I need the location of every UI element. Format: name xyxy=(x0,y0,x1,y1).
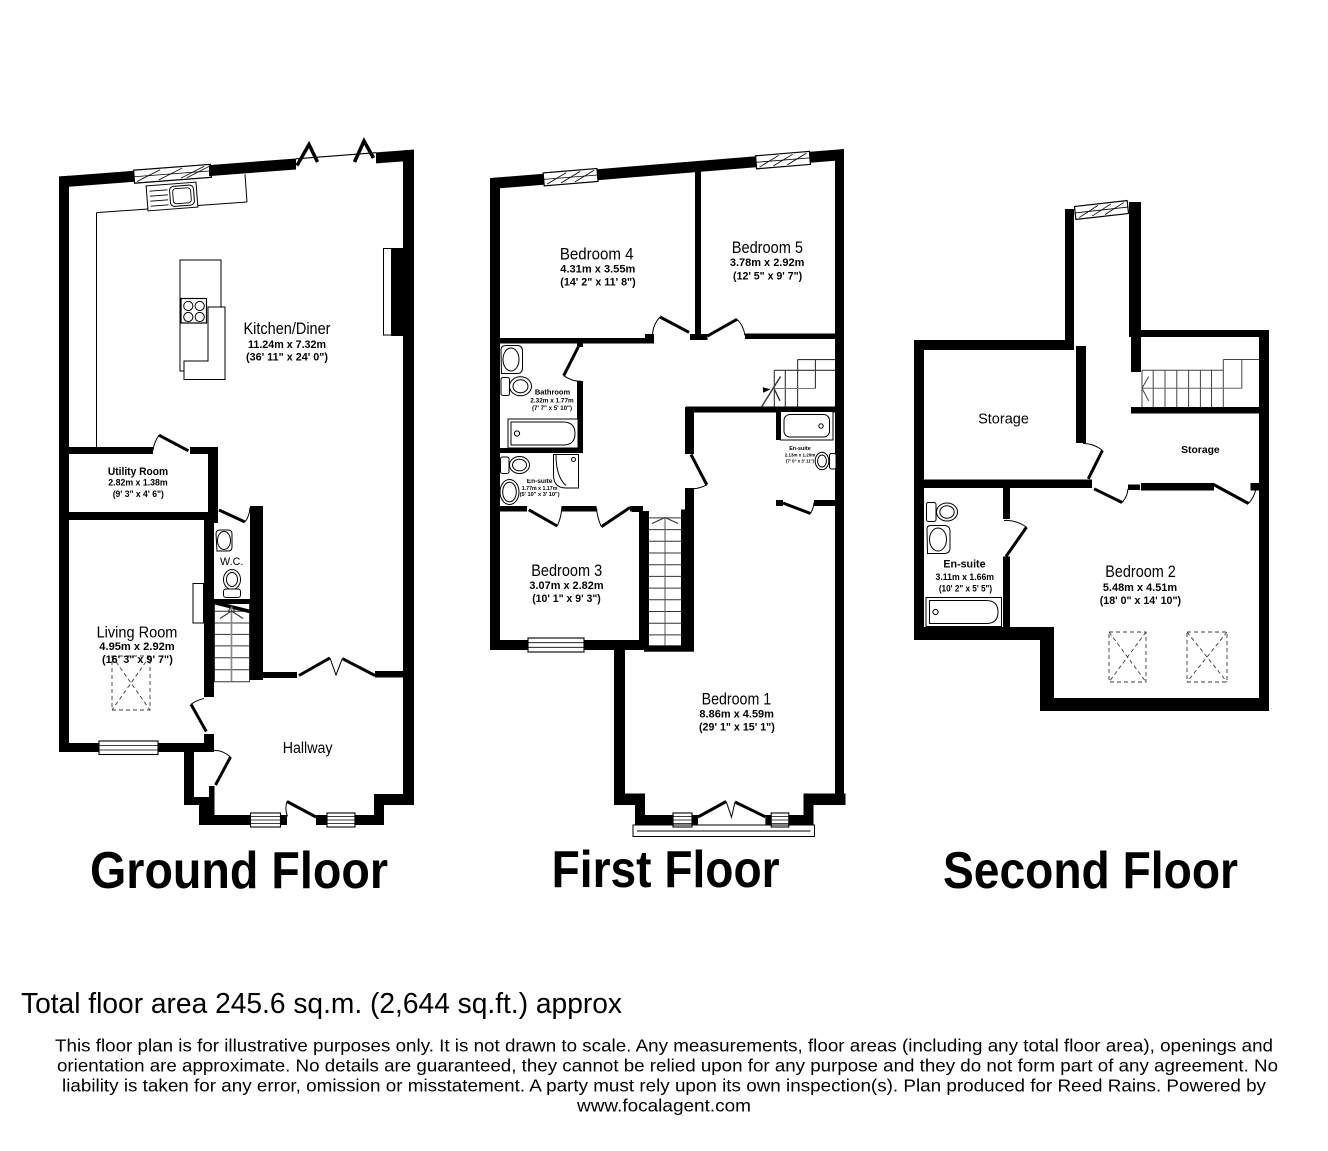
svg-text:Storage: Storage xyxy=(1181,445,1220,456)
svg-text:(29' 1" x 15' 1"): (29' 1" x 15' 1") xyxy=(699,722,775,734)
svg-text:8.86m x 4.59m: 8.86m x 4.59m xyxy=(699,709,774,721)
svg-text:Bedroom 5: Bedroom 5 xyxy=(732,239,803,257)
svg-text:Bedroom 1: Bedroom 1 xyxy=(702,690,772,708)
svg-text:3.11m x 1.66m: 3.11m x 1.66m xyxy=(936,572,995,583)
svg-text:(5' 10" x 3' 10"): (5' 10" x 3' 10") xyxy=(520,492,560,498)
svg-text:Hallway: Hallway xyxy=(283,740,333,757)
svg-text:Living Room: Living Room xyxy=(97,624,178,641)
svg-text:(14' 2" x 11' 8"): (14' 2" x 11' 8") xyxy=(560,277,636,289)
svg-text:This floor plan is for illustr: This floor plan is for illustrative purp… xyxy=(55,1036,1273,1056)
svg-text:(12' 5" x 9' 7"): (12' 5" x 9' 7") xyxy=(733,270,802,282)
svg-text:Kitchen/Diner: Kitchen/Diner xyxy=(244,319,331,338)
svg-text:(10' 2" x 5' 5"): (10' 2" x 5' 5") xyxy=(939,584,992,595)
svg-text:(18' 0" x 14' 10"): (18' 0" x 14' 10") xyxy=(1100,595,1182,607)
svg-text:Bedroom 3: Bedroom 3 xyxy=(531,562,602,580)
svg-text:Total floor area 245.6 sq.m. (: Total floor area 245.6 sq.m. (2,644 sq.f… xyxy=(21,987,622,1019)
svg-text:Second Floor: Second Floor xyxy=(943,842,1238,900)
svg-text:3.78m x 2.92m: 3.78m x 2.92m xyxy=(730,257,805,269)
svg-text:4.31m x 3.55m: 4.31m x 3.55m xyxy=(560,264,635,276)
svg-text:(36' 11" x 24' 0"): (36' 11" x 24' 0") xyxy=(246,352,328,364)
svg-text:2.82m x 1.38m: 2.82m x 1.38m xyxy=(108,478,167,488)
svg-text:Bathroom: Bathroom xyxy=(535,388,571,397)
svg-text:Utility Room: Utility Room xyxy=(108,466,168,478)
svg-text:Bedroom 4: Bedroom 4 xyxy=(560,245,634,263)
svg-text:11.24m x 7.32m: 11.24m x 7.32m xyxy=(248,339,326,351)
svg-text:2.32m x 1.77m: 2.32m x 1.77m xyxy=(530,398,574,405)
svg-text:En-suite: En-suite xyxy=(789,446,811,452)
svg-text:orientation are approximate. N: orientation are approximate. No details … xyxy=(57,1056,1278,1076)
svg-text:En-suite: En-suite xyxy=(943,559,985,571)
svg-text:W.C.: W.C. xyxy=(220,556,243,568)
svg-text:First Floor: First Floor xyxy=(552,841,780,899)
svg-text:Storage: Storage xyxy=(978,411,1029,427)
svg-text:(7' 7" x 5' 10"): (7' 7" x 5' 10") xyxy=(532,405,572,412)
svg-text:4.95m x 2.92m: 4.95m x 2.92m xyxy=(99,641,174,653)
svg-text:(9' 3" x 4' 6"): (9' 3" x 4' 6") xyxy=(113,489,164,499)
svg-text:(10' 1" x 9' 3"): (10' 1" x 9' 3") xyxy=(532,593,601,605)
svg-text:(7' 0" x 3' 11"): (7' 0" x 3' 11") xyxy=(786,458,814,463)
svg-text:(16' 3" x 9' 7"): (16' 3" x 9' 7") xyxy=(102,654,173,666)
svg-text:Bedroom 2: Bedroom 2 xyxy=(1105,563,1176,581)
svg-text:5.48m x 4.51m: 5.48m x 4.51m xyxy=(1103,582,1177,594)
svg-text:2.13m x 1.20m: 2.13m x 1.20m xyxy=(785,452,816,457)
svg-text:En-suite: En-suite xyxy=(527,479,553,485)
svg-text:www.focalagent.com: www.focalagent.com xyxy=(576,1096,751,1116)
svg-text:liability is taken for any err: liability is taken for any error, omissi… xyxy=(62,1076,1266,1096)
svg-text:Ground Floor: Ground Floor xyxy=(90,842,388,900)
svg-text:3.07m x 2.82m: 3.07m x 2.82m xyxy=(529,580,603,592)
svg-text:1.77m x 1.17m: 1.77m x 1.17m xyxy=(522,486,558,492)
